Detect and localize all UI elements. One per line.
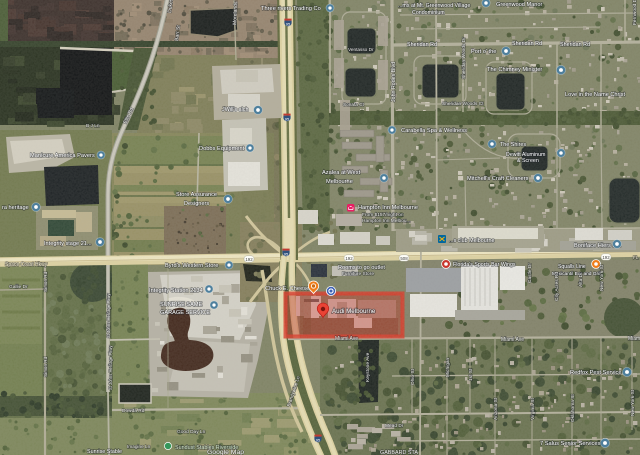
svg-text:Ventasso Dr: Ventasso Dr: [348, 47, 374, 52]
svg-text:508: 508: [400, 256, 408, 261]
svg-text:Sheridan Rd: Sheridan Rd: [560, 42, 590, 48]
svg-text:Sheridan Rd: Sheridan Rd: [512, 41, 542, 47]
svg-text:Alta Dr: Alta Dr: [578, 272, 584, 287]
svg-text:192: 192: [345, 256, 353, 261]
svg-text:Mead Dr: Mead Dr: [385, 423, 404, 429]
svg-text:Hampton Inn Melbourne: Hampton Inn Melbourne: [358, 205, 418, 211]
svg-text:Greenwood Manor: Greenwood Manor: [496, 2, 542, 8]
svg-text:Space Coast Hkwy: Space Coast Hkwy: [5, 262, 48, 268]
svg-text:...s club Melbourne: ...s club Melbourne: [449, 238, 495, 244]
svg-text:7 Salus Senior Services: 7 Salus Senior Services: [540, 441, 601, 447]
svg-text:Florida's Sports Bar Wings: Florida's Sports Bar Wings: [453, 262, 516, 268]
svg-text:192: 192: [245, 257, 253, 262]
svg-text:95: 95: [284, 251, 289, 256]
svg-text:Sheridan Woods Ct: Sheridan Woods Ct: [442, 101, 484, 107]
svg-text:The Chimney Minister: The Chimney Minister: [487, 67, 542, 73]
svg-text:FL: FL: [633, 255, 639, 261]
svg-text:95: 95: [316, 437, 321, 442]
svg-text:Miami: Miami: [628, 336, 640, 342]
svg-text:Audi Melbourne: Audi Melbourne: [332, 308, 376, 315]
svg-text:Melbourne: Melbourne: [326, 179, 353, 185]
svg-text:ra heritage: ra heritage: [2, 205, 29, 211]
svg-text:Furniture Store: Furniture Store: [342, 271, 374, 277]
svg-text:GABBARD STA: GABBARD STA: [380, 450, 418, 455]
svg-text:Integrity Station 2134: Integrity Station 2134: [149, 288, 203, 294]
svg-text:JWill's alch: JWill's alch: [222, 107, 249, 113]
svg-text:New York St: New York St: [630, 389, 636, 416]
svg-text:Arizona St: Arizona St: [493, 397, 499, 420]
svg-text:Rooms to go outlet: Rooms to go outlet: [338, 265, 385, 271]
svg-text:St Johns Heritage Pkwy: St Johns Heritage Pkwy: [108, 345, 113, 390]
svg-text:St Johns Heritage Pkwy: St Johns Heritage Pkwy: [106, 293, 111, 338]
svg-text:...ms at Mt. Greenwood Village: ...ms at Mt. Greenwood Village: [398, 3, 470, 9]
svg-text:Byrd's Western Store: Byrd's Western Store: [165, 263, 218, 269]
svg-text:SUNRISE SAME: SUNRISE SAME: [160, 302, 203, 308]
svg-text:Love in the Name Christ: Love in the Name Christ: [565, 92, 625, 98]
svg-text:& Screen: & Screen: [517, 158, 539, 164]
svg-text:Condominium: Condominium: [412, 10, 445, 16]
svg-text:95: 95: [285, 116, 290, 121]
svg-text:John Rodes Blvd: John Rodes Blvd: [391, 62, 397, 102]
svg-text:Gallie Dr: Gallie Dr: [9, 284, 28, 290]
svg-text:Keystone Ave: Keystone Ave: [365, 352, 371, 382]
svg-text:Oklahoma St: Oklahoma St: [570, 394, 576, 422]
svg-text:Google Map: Google Map: [207, 449, 244, 455]
svg-text:Manicure America Pavers: Manicure America Pavers: [30, 153, 95, 159]
svg-text:Ohio St: Ohio St: [410, 368, 416, 385]
svg-text:Castle Dr: Castle Dr: [527, 263, 533, 283]
svg-text:GARAGE SERVICE: GARAGE SERVICE: [160, 310, 210, 316]
svg-text:Port o' the: Port o' the: [471, 49, 496, 55]
svg-text:Dowda Rd: Dowda Rd: [122, 408, 145, 414]
svg-text:Carabella Spa & Wellness: Carabella Spa & Wellness: [401, 128, 467, 134]
svg-text:Dobbs Equipment: Dobbs Equipment: [199, 146, 245, 152]
svg-text:Designers: Designers: [184, 201, 209, 207]
svg-text:Miami Ave: Miami Ave: [501, 337, 524, 343]
svg-text:From $157/night on: From $157/night on: [362, 212, 404, 218]
svg-text:Squalls Line: Squalls Line: [558, 264, 586, 270]
svg-text:Redfox Pest Service: Redfox Pest Service: [570, 370, 622, 376]
svg-text:Sonata Ct: Sonata Ct: [343, 102, 365, 107]
svg-text:Simon Rd: Simon Rd: [43, 271, 48, 292]
svg-text:Three rivers Trading Co: Three rivers Trading Co: [261, 6, 321, 12]
svg-text:Good Day Ln: Good Day Ln: [177, 429, 206, 435]
svg-text:B J Ln: B J Ln: [86, 123, 100, 129]
svg-text:New York St: New York St: [599, 264, 605, 291]
svg-text:Miami Ave: Miami Ave: [335, 336, 358, 342]
svg-text:Store Assurance: Store Assurance: [176, 192, 217, 198]
svg-text:192: 192: [602, 255, 610, 260]
svg-text:Integrity stage 21...: Integrity stage 21...: [44, 241, 92, 247]
svg-text:Virginia St: Virginia St: [530, 398, 536, 420]
svg-text:Simon Rd: Simon Rd: [43, 356, 48, 377]
svg-text:City Acres Rd: City Acres Rd: [554, 272, 560, 301]
svg-text:Sheridan Rd: Sheridan Rd: [407, 42, 437, 48]
svg-text:Sheridan Woods Dr: Sheridan Woods Dr: [461, 37, 467, 79]
svg-text:Chuck E. Cheese's: Chuck E. Cheese's: [265, 286, 313, 292]
svg-text:1st St: 1st St: [468, 368, 474, 381]
svg-text:The Shires: The Shires: [500, 142, 526, 148]
svg-text:Hampton Inn Melbou...: Hampton Inn Melbou...: [362, 218, 411, 224]
svg-text:Fernwood Dr: Fernwood Dr: [632, 0, 638, 25]
svg-text:Azalea at West: Azalea at West: [322, 170, 361, 176]
svg-text:Michigan: Michigan: [445, 357, 451, 377]
svg-text:Imagine Ln: Imagine Ln: [127, 444, 151, 449]
svg-text:Sunrise Stable: Sunrise Stable: [87, 449, 122, 455]
svg-text:95: 95: [286, 21, 291, 26]
svg-text:Mitchell's Craft Cleaners: Mitchell's Craft Cleaners: [467, 176, 529, 182]
